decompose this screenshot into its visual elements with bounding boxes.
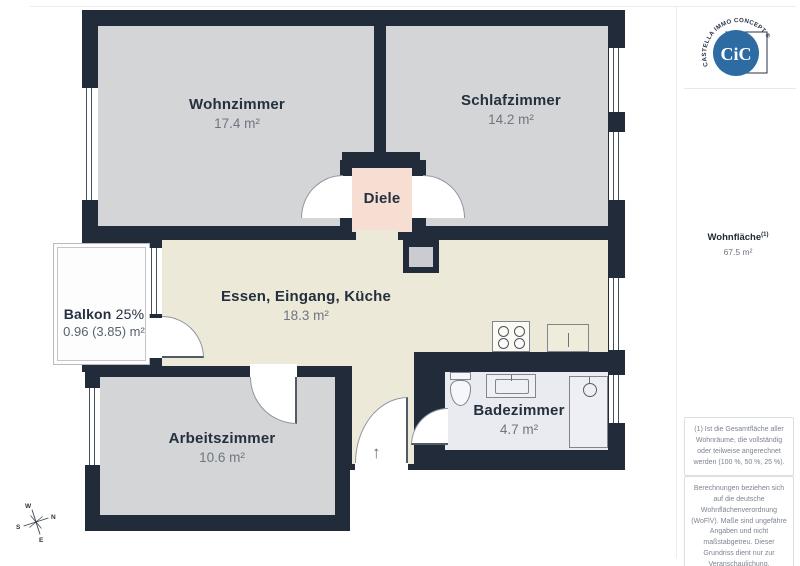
room-area: 18.3 m² (221, 308, 391, 323)
logo-divider-line (684, 88, 796, 89)
cic-logo: CASTELLA IMMO CONCEPT ® CiC (698, 8, 778, 86)
room-area: 4.7 m² (473, 422, 564, 437)
door-opening-balkon (147, 318, 162, 358)
entrance-arrow-icon: ↑ (372, 443, 381, 463)
window-balkon (147, 248, 162, 314)
room-name: Diele (364, 190, 401, 207)
window-schlafzimmer-east-1 (609, 48, 625, 112)
panel-divider-line (676, 6, 677, 558)
window-badezimmer-east (609, 375, 625, 423)
window-kueche-east (609, 278, 625, 350)
room-area: 14.2 m² (461, 112, 561, 127)
balkon-percent: 25% (116, 306, 145, 322)
room-area: 0.96 (3.85) m² (63, 324, 145, 339)
burner-icon (514, 338, 525, 349)
window-arbeitszimmer-west (85, 388, 100, 465)
shower-icon (569, 376, 608, 448)
opening-diele-essen (356, 230, 398, 242)
bathroom-sink-icon (486, 374, 536, 398)
kitchen-sink-icon (547, 324, 589, 352)
bathroom-sink-basin (495, 379, 529, 394)
room-label-wohnzimmer: Wohnzimmer 17.4 m² (189, 96, 285, 131)
room-name: Essen, Eingang, Küche (221, 288, 391, 305)
room-label-schlafzimmer: Schlafzimmer 14.2 m² (461, 92, 561, 127)
window-wohnzimmer-west (82, 88, 98, 200)
room-name: Badezimmer (473, 402, 564, 419)
compass-e: E (39, 537, 44, 544)
burner-icon (498, 338, 509, 349)
room-area: 17.4 m² (189, 116, 285, 131)
burner-icon (498, 326, 509, 337)
compass-w: W (25, 503, 32, 510)
shower-knob-icon (583, 383, 597, 397)
room-label-arbeitszimmer: Arbeitszimmer 10.6 m² (169, 430, 276, 465)
room-area: 10.6 m² (169, 450, 276, 465)
footnote-box-1: (1) Ist die Gesamtfläche aller Wohnräume… (684, 417, 794, 476)
compass-icon: N E S W (12, 496, 64, 548)
window-schlafzimmer-east-2 (609, 132, 625, 200)
compass-n: N (51, 514, 56, 521)
room-name: Wohnzimmer (189, 96, 285, 113)
footnote-marker: (1) (761, 232, 768, 238)
stove-icon (492, 321, 530, 352)
burner-icon (514, 326, 525, 337)
logo-monogram: CiC (721, 44, 752, 64)
toilet-icon (450, 372, 471, 380)
footnote-box-2: Berechnungen beziehen sich auf die deuts… (684, 476, 794, 566)
top-divider-line (30, 6, 796, 7)
floorplan-page: Wohnzimmer 17.4 m² Schlafzimmer 14.2 m² … (0, 0, 800, 566)
room-name: Schlafzimmer (461, 92, 561, 109)
door-opening-arbeitszimmer (250, 364, 297, 378)
shaft-inner (409, 247, 433, 267)
room-name: Arbeitszimmer (169, 430, 276, 447)
living-area-label: Wohnfläche(1) (683, 232, 793, 243)
living-area-value: 67.5 m² (683, 247, 793, 257)
door-opening-entrance (355, 462, 408, 472)
living-area-summary: Wohnfläche(1) 67.5 m² (683, 232, 793, 257)
footnote-1-text: (1) Ist die Gesamtfläche aller Wohnräume… (693, 426, 784, 466)
room-label-balkon: Balkon 25% 0.96 (3.85) m² (63, 306, 145, 339)
footnote-2-text: Berechnungen beziehen sich auf die deuts… (691, 485, 787, 566)
room-label-badezimmer: Badezimmer 4.7 m² (473, 402, 564, 437)
wall-diele-top (342, 152, 420, 168)
compass-s: S (16, 524, 21, 531)
room-label-diele: Diele (364, 190, 401, 207)
room-name: Balkon 25% (63, 306, 145, 322)
room-label-essen: Essen, Eingang, Küche 18.3 m² (221, 288, 391, 323)
balcony-outline (53, 243, 150, 365)
